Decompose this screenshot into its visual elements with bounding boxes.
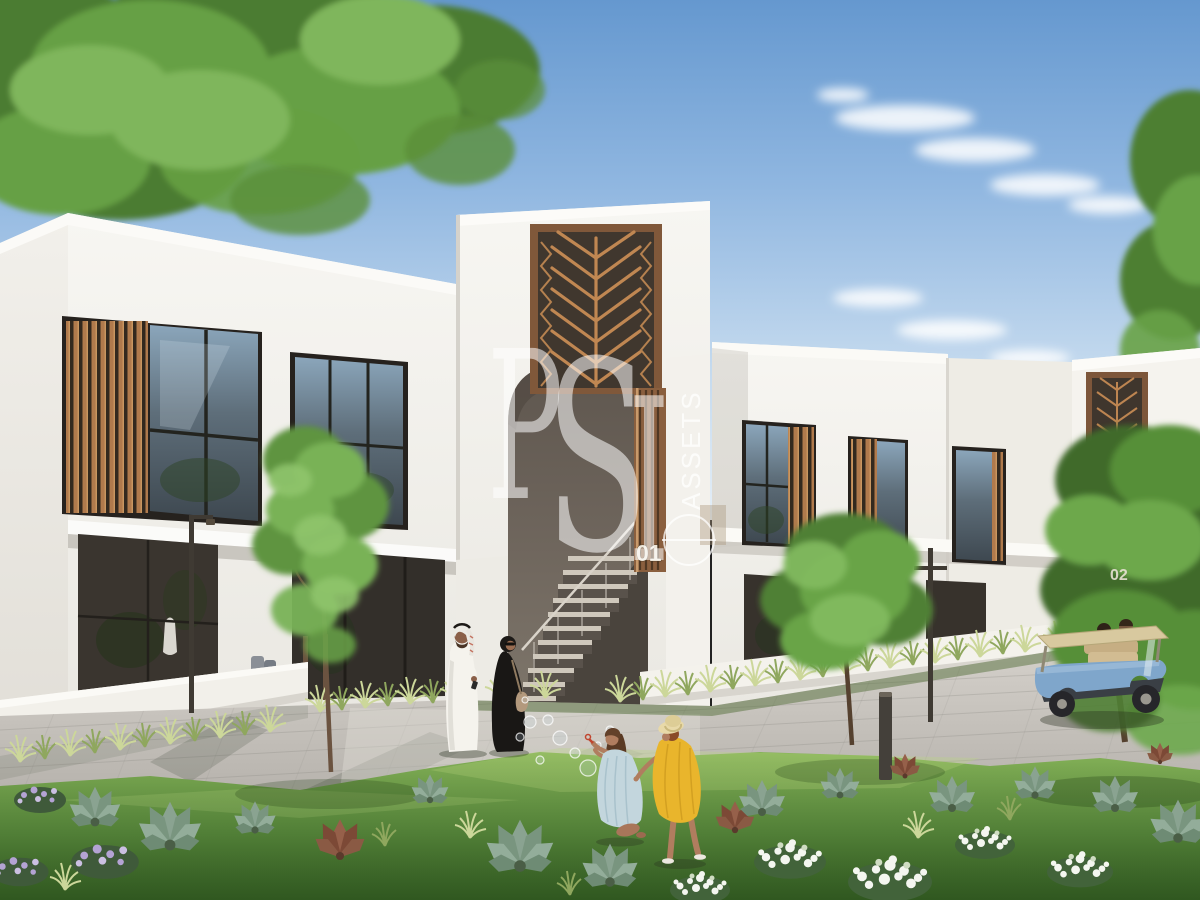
watermark-sub: ASSETS bbox=[676, 389, 706, 510]
watermark-letter-i: I bbox=[629, 351, 669, 614]
window-ground-left bbox=[78, 534, 218, 700]
bollard-light bbox=[879, 692, 892, 780]
golf-cart bbox=[1035, 619, 1168, 729]
building-left bbox=[0, 213, 456, 756]
window-upper-left-louvered bbox=[62, 316, 262, 526]
architectural-render: 01 02 P S I ASSETS bbox=[0, 0, 1200, 900]
render-canvas: 01 02 P S I ASSETS bbox=[0, 0, 1200, 900]
unit-label-02: 02 bbox=[1110, 567, 1128, 584]
